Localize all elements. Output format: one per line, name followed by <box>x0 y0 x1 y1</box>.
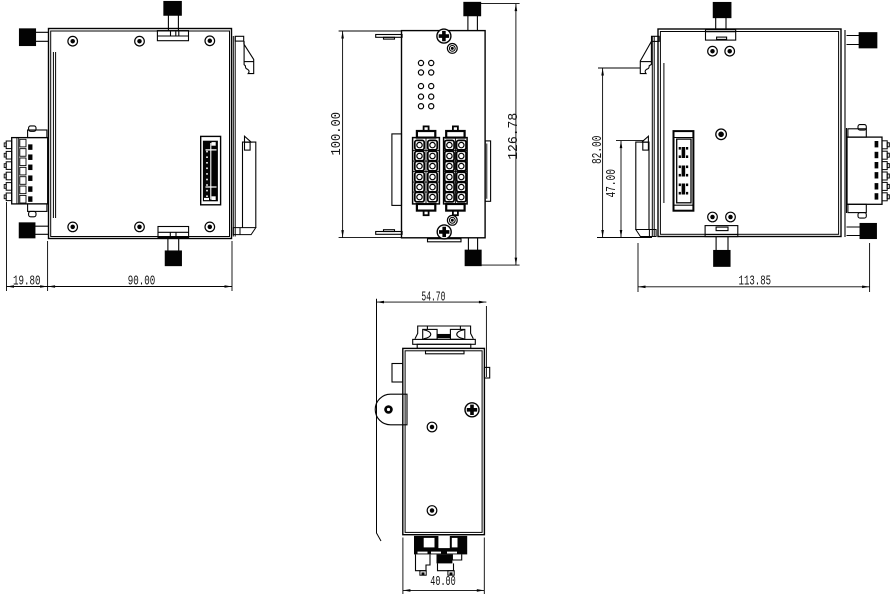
svg-text:82.00: 82.00 <box>590 136 606 165</box>
svg-text:40.00: 40.00 <box>430 574 456 590</box>
svg-text:100.00: 100.00 <box>329 112 345 156</box>
svg-text:54.70: 54.70 <box>421 290 445 306</box>
svg-text:126.78: 126.78 <box>506 113 522 160</box>
svg-text:19.80: 19.80 <box>13 273 41 289</box>
svg-text:47.00: 47.00 <box>604 169 620 198</box>
svg-text:90.00: 90.00 <box>128 273 156 289</box>
svg-text:113.85: 113.85 <box>739 273 772 289</box>
